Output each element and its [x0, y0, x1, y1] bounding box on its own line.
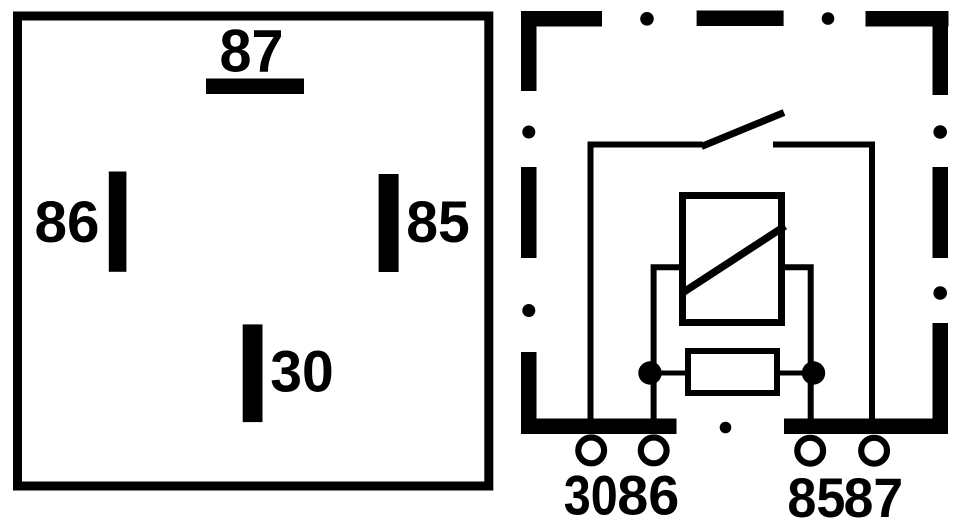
svg-text:86: 86 [617, 464, 679, 524]
svg-text:87: 87 [844, 466, 904, 524]
svg-text:86: 86 [35, 190, 100, 255]
svg-text:85: 85 [787, 466, 845, 524]
svg-text:85: 85 [406, 190, 470, 255]
svg-text:30: 30 [270, 340, 334, 405]
svg-text:30: 30 [564, 464, 618, 524]
svg-text:87: 87 [220, 18, 284, 85]
